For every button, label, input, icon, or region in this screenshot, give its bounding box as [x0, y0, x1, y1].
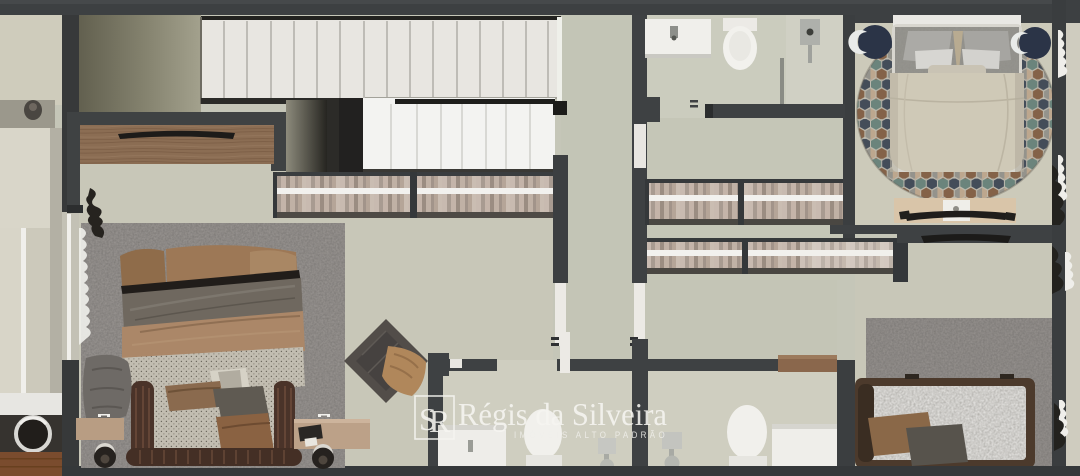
svg-text:Régis da Silveira: Régis da Silveira [458, 396, 667, 432]
svg-text:IMÓVEIS ALTO PADRÃO: IMÓVEIS ALTO PADRÃO [514, 430, 668, 441]
svg-text:R: R [429, 403, 451, 439]
